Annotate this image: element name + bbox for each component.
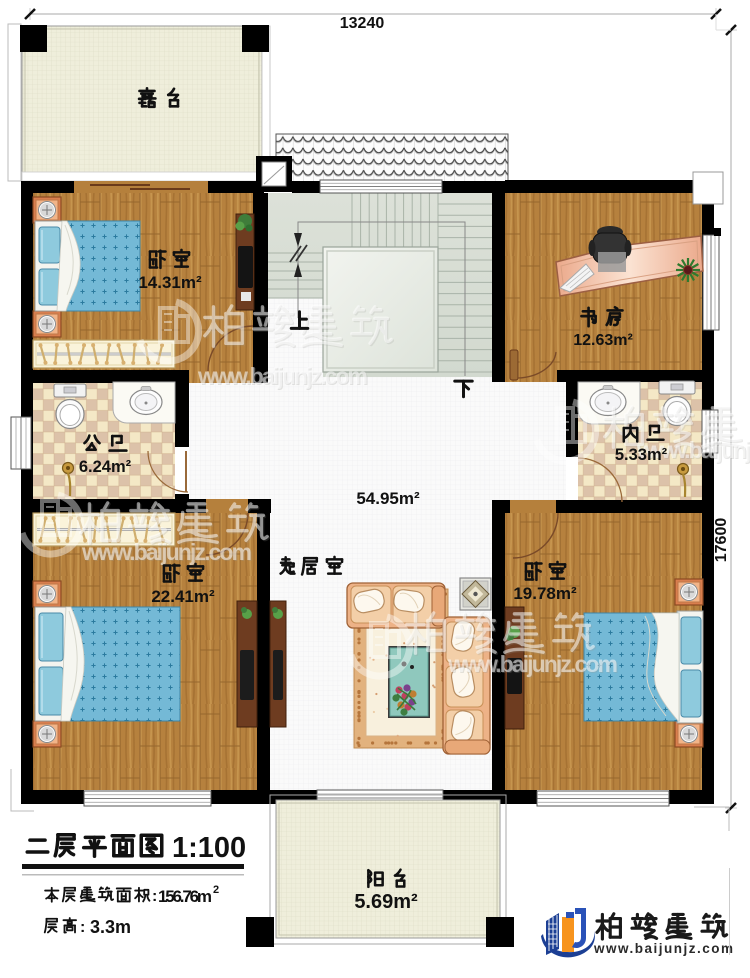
svg-text:1:100: 1:100	[172, 832, 246, 864]
svg-text:5.33m²: 5.33m²	[615, 446, 668, 464]
svg-text:www.baijunjz.com: www.baijunjz.com	[593, 941, 735, 956]
svg-text::: :	[80, 919, 85, 936]
svg-text:www.baijunjz.com: www.baijunjz.com	[447, 651, 618, 677]
svg-text:17600: 17600	[713, 518, 730, 563]
svg-text:19.78m²: 19.78m²	[513, 584, 577, 603]
svg-text::: :	[152, 888, 157, 905]
svg-text:2: 2	[213, 884, 219, 896]
svg-text:www.baijunjz.com: www.baijunjz.com	[81, 539, 252, 565]
svg-text:14.31m²: 14.31m²	[138, 273, 202, 292]
svg-text:6.24m²: 6.24m²	[79, 458, 132, 476]
svg-text:22.41m²: 22.41m²	[151, 587, 215, 606]
svg-text:12.63m²: 12.63m²	[573, 332, 633, 349]
svg-text:13240: 13240	[340, 15, 385, 32]
svg-text:54.95m²: 54.95m²	[356, 489, 420, 508]
svg-text:5.69m²: 5.69m²	[354, 891, 418, 913]
svg-text:www.baijunjz.com: www.baijunjz.com	[197, 363, 368, 389]
svg-text:156.76m: 156.76m	[158, 887, 212, 906]
svg-text:3.3m: 3.3m	[90, 917, 131, 937]
